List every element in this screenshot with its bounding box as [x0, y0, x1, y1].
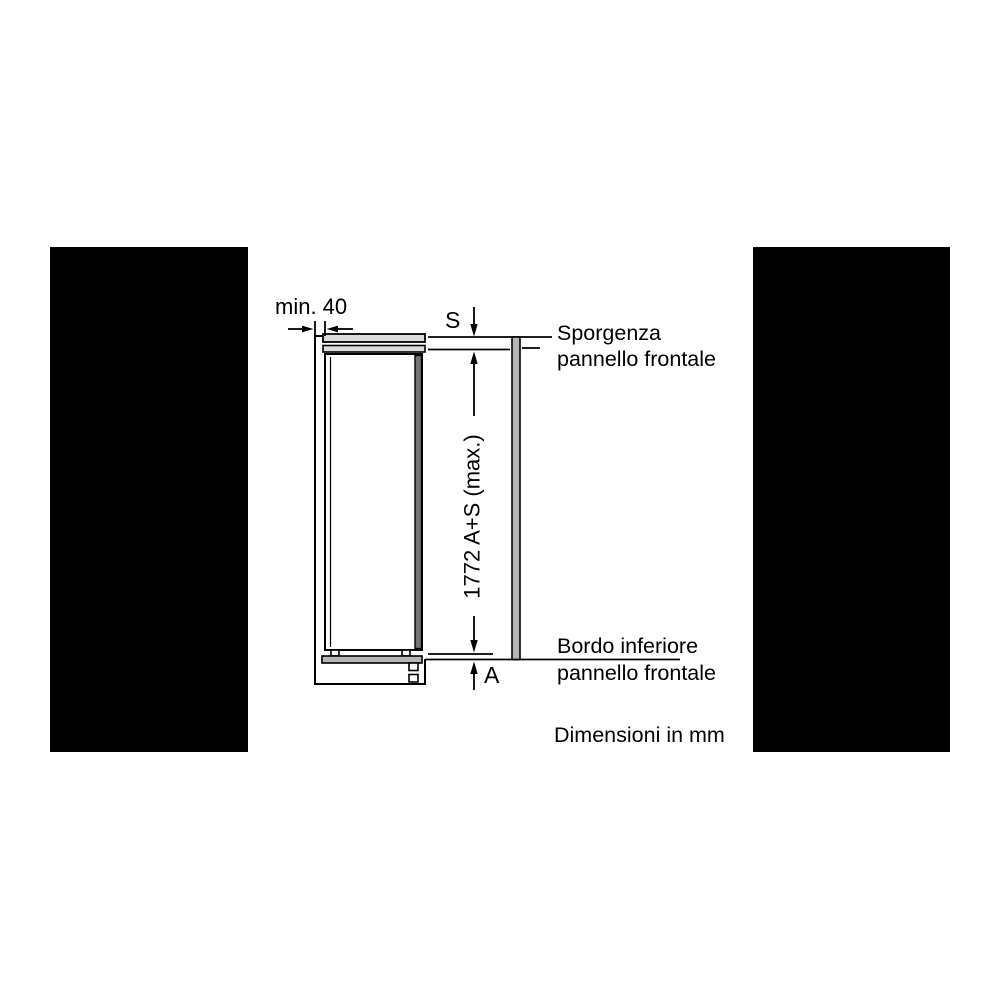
lower-edge-label-line1: Bordo inferiore: [557, 633, 716, 660]
units-note-label: Dimensioni in mm: [554, 722, 725, 748]
top-bar-lower: [323, 346, 425, 353]
dimension-a-label: A: [484, 662, 499, 688]
height-dimension-label: 1772 A+S (max.): [459, 417, 486, 617]
front-panel-protrusion-label-line1: Sporgenza: [557, 320, 716, 346]
min-clearance-label: min. 40: [275, 294, 347, 320]
lower-edge-label-line2: pannello frontale: [557, 660, 716, 687]
plinth-bar: [322, 656, 422, 663]
top-bar-upper: [323, 334, 425, 342]
door-foot-left: [331, 650, 339, 656]
min-clearance-right-arrowhead: [302, 326, 314, 333]
dimension-s-arrow: [470, 307, 477, 337]
front-panel-protrusion-label: Sporgenza pannello frontale: [557, 320, 716, 372]
dimension-height-bottom-arrowhead: [470, 640, 477, 653]
plinth-bracket-lower: [409, 675, 418, 683]
plinth-bracket-upper: [409, 663, 418, 671]
page: min. 40 S Sporgenza pannello frontale 17…: [0, 0, 1000, 1000]
door-foot-right: [402, 650, 410, 656]
top-mounting-bars: [323, 334, 425, 352]
front-panel-bar: [512, 337, 520, 660]
door-front-edge-bar: [415, 356, 422, 649]
appliance-door: [325, 354, 422, 650]
front-panel-protrusion-label-line2: pannello frontale: [557, 346, 716, 372]
plinth-assembly: [322, 656, 422, 682]
dimension-s-label: S: [445, 307, 460, 333]
door-body: [325, 354, 422, 650]
dimension-s-arrowhead: [470, 324, 477, 337]
installation-diagram: [0, 0, 1000, 1000]
dimension-a-arrow: [470, 662, 477, 691]
min-clearance-left-arrowhead: [327, 326, 339, 333]
lower-edge-label: Bordo inferiore pannello frontale: [557, 633, 716, 687]
